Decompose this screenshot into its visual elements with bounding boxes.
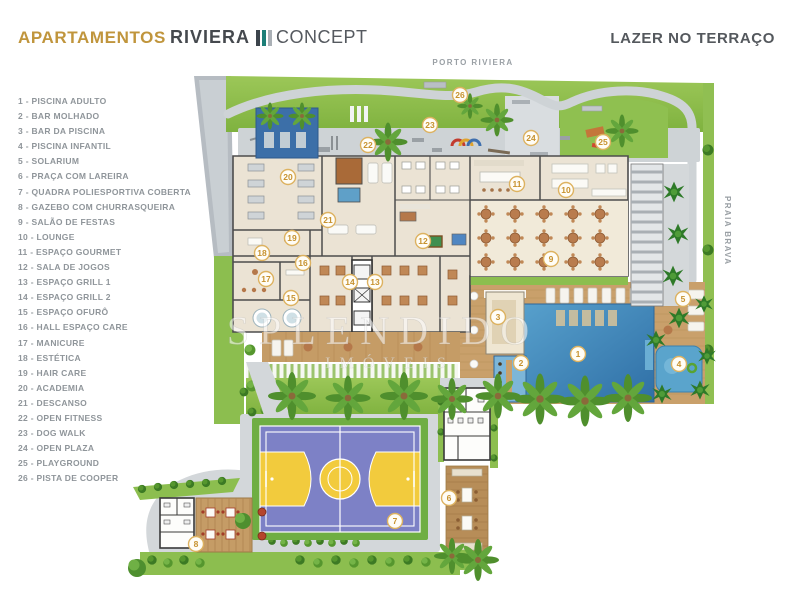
- svg-text:7: 7: [393, 516, 398, 526]
- svg-text:26: 26: [455, 90, 465, 100]
- svg-text:5: 5: [681, 294, 686, 304]
- svg-text:10: 10: [561, 185, 571, 195]
- svg-text:9: 9: [549, 254, 554, 264]
- plan-marker: 5: [676, 292, 691, 307]
- svg-text:6: 6: [447, 493, 452, 503]
- plan-marker: 25: [596, 135, 611, 150]
- apartamentos-label: APARTAMENTOS: [18, 28, 166, 48]
- plan-marker: 9: [544, 252, 559, 267]
- plan-marker: 8: [189, 537, 204, 552]
- plan-marker: 24: [524, 131, 539, 146]
- plan-marker: 23: [423, 118, 438, 133]
- site-plan: SPLENDIDO IMÓVEIS 1234567891011121314151…: [125, 56, 795, 586]
- plan-marker: 15: [284, 291, 299, 306]
- svg-text:11: 11: [513, 179, 522, 189]
- plan-marker: 20: [281, 170, 296, 185]
- logo-suffix: CONCEPT: [276, 27, 368, 48]
- svg-text:1: 1: [576, 349, 581, 359]
- svg-text:23: 23: [425, 120, 435, 130]
- svg-text:4: 4: [677, 359, 682, 369]
- plan-marker: 26: [453, 88, 468, 103]
- logo-bars-icon: [256, 30, 272, 46]
- plan-marker: 3: [491, 310, 506, 325]
- svg-text:21: 21: [323, 215, 333, 225]
- svg-text:8: 8: [194, 539, 199, 549]
- plan-marker: 7: [388, 514, 403, 529]
- plan-marker: 14: [343, 275, 358, 290]
- plan-marker: 17: [259, 272, 274, 287]
- plan-marker: 12: [416, 234, 431, 249]
- fireplace-plaza: [434, 388, 498, 570]
- svg-text:24: 24: [526, 133, 536, 143]
- watermark-line2: IMÓVEIS: [325, 353, 455, 372]
- gazebo: [160, 498, 266, 552]
- svg-text:19: 19: [287, 233, 297, 243]
- svg-text:17: 17: [261, 274, 271, 284]
- plan-marker: 19: [285, 231, 300, 246]
- plan-marker: 18: [255, 246, 270, 261]
- plan-marker: 13: [368, 275, 383, 290]
- plan-marker: 21: [321, 213, 336, 228]
- svg-text:3: 3: [496, 312, 501, 322]
- plan-marker: 1: [571, 347, 586, 362]
- plan-marker: 22: [361, 138, 376, 153]
- svg-text:15: 15: [286, 293, 296, 303]
- plan-marker: 16: [296, 256, 311, 271]
- svg-text:13: 13: [370, 277, 380, 287]
- plan-marker: 4: [672, 357, 687, 372]
- playground-area: [560, 97, 668, 158]
- svg-text:12: 12: [418, 236, 428, 246]
- page-title: LAZER NO TERRAÇO: [610, 30, 775, 47]
- svg-text:16: 16: [298, 258, 308, 268]
- svg-text:2: 2: [519, 358, 524, 368]
- svg-text:14: 14: [345, 277, 355, 287]
- svg-text:22: 22: [363, 140, 373, 150]
- logo-name: RIVIERA: [170, 27, 250, 48]
- plan-marker: 11: [510, 177, 525, 192]
- svg-text:25: 25: [598, 137, 608, 147]
- svg-text:18: 18: [257, 248, 267, 258]
- svg-text:20: 20: [283, 172, 293, 182]
- plan-marker: 6: [442, 491, 457, 506]
- plan-marker: 2: [514, 356, 529, 371]
- plan-marker: 10: [559, 183, 574, 198]
- riviera-concept-logo: RIVIERA CONCEPT: [170, 27, 368, 48]
- brochure-page: APARTAMENTOS RIVIERA CONCEPT LAZER NO TE…: [0, 0, 795, 600]
- deck-loungers: [546, 288, 639, 303]
